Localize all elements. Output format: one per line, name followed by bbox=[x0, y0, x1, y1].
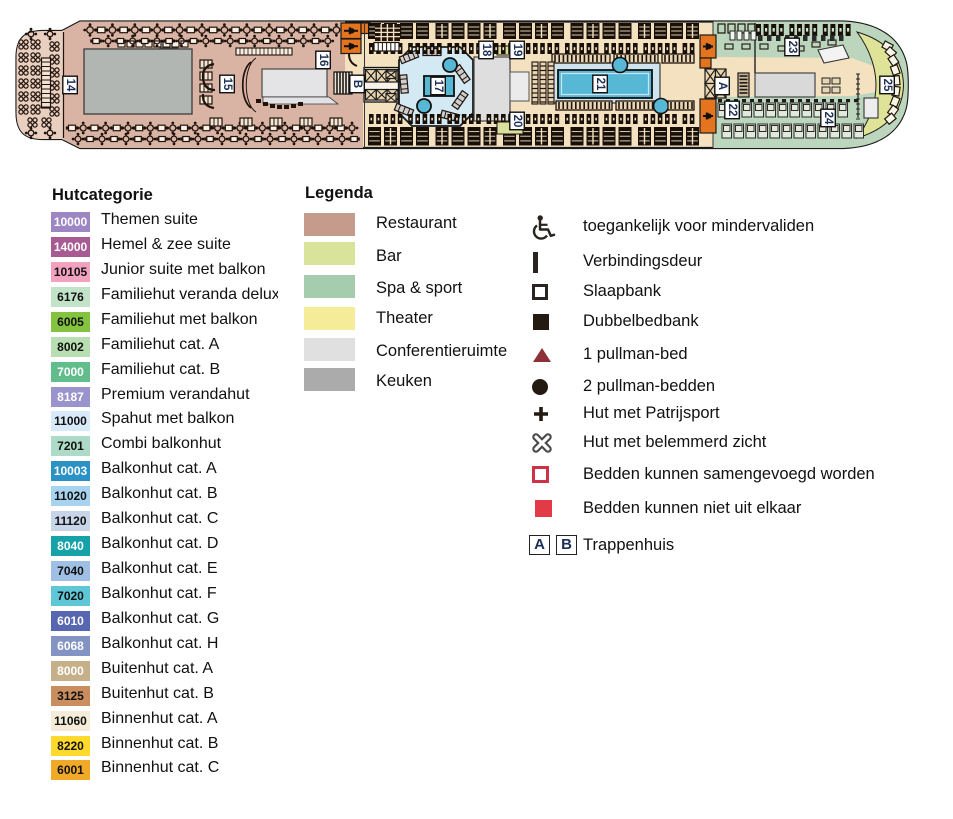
svg-text:22: 22 bbox=[726, 104, 738, 117]
svg-text:24: 24 bbox=[822, 112, 834, 125]
svg-text:23: 23 bbox=[786, 41, 798, 54]
svg-text:15: 15 bbox=[221, 78, 233, 91]
svg-text:14: 14 bbox=[64, 79, 76, 92]
svg-text:21: 21 bbox=[594, 78, 606, 91]
svg-text:18: 18 bbox=[480, 44, 492, 57]
svg-text:20: 20 bbox=[511, 115, 523, 128]
svg-text:A: A bbox=[716, 82, 728, 90]
svg-text:16: 16 bbox=[317, 54, 329, 67]
svg-text:B: B bbox=[351, 80, 363, 88]
svg-text:25: 25 bbox=[881, 79, 893, 92]
svg-text:19: 19 bbox=[511, 44, 523, 57]
svg-text:17: 17 bbox=[432, 80, 444, 93]
